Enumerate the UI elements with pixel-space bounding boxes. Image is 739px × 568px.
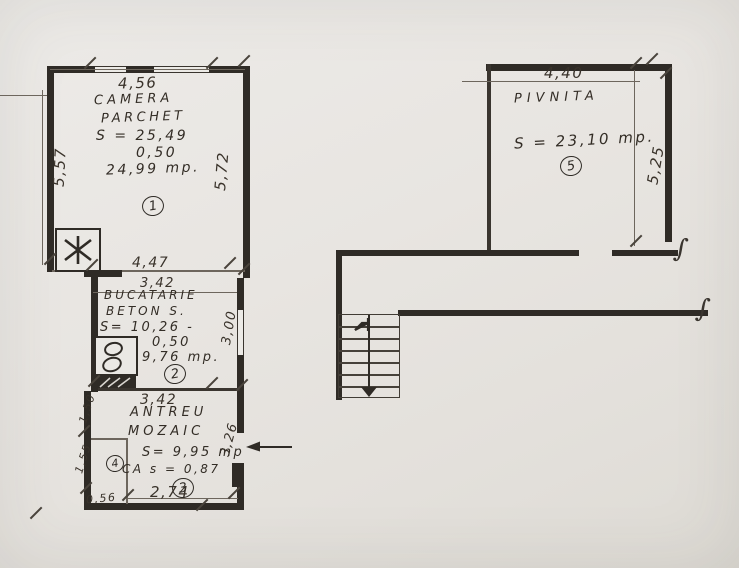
stair-start-flag-icon (349, 317, 371, 333)
staircase (338, 314, 400, 398)
dimension-tick (630, 235, 643, 248)
dim-antreu-bottom-left: 0,56 (85, 491, 117, 507)
antreu-area-line1: S= 9,95 mp (142, 445, 244, 460)
wall-break-icon: ∫ (694, 293, 712, 325)
pivnita-wall-bottom-right-segment (612, 250, 678, 256)
kitchen-wall-right-upper (237, 278, 244, 310)
pivnita-wall-left (487, 64, 491, 253)
dim-line-camera-top (50, 69, 245, 70)
dim-camera-left: 5,57 (50, 147, 70, 187)
dim-antreu-left-upper: 1,50 (76, 392, 98, 425)
bucatarie-area-line3: 9,76 mp. (142, 350, 220, 365)
extension-line-left (0, 95, 47, 96)
corridor-wall-lower (398, 310, 708, 316)
antreu-area-line2: CA s = 0,87 (122, 462, 221, 476)
camera-room-number: 1 (140, 194, 165, 218)
sink-counter-icon (94, 336, 138, 376)
floor-plan-canvas: ∫ ∫ 4,56 5,57 5,72 4,47 3,42 3,00 3,42 1… (0, 0, 739, 568)
dim-kitchen-top-outer: 4,47 (132, 255, 169, 271)
stove-icon (55, 228, 101, 272)
dimension-tick (30, 507, 43, 520)
camera-wall-right (243, 66, 250, 278)
pivnita-name: PIVNITA (514, 89, 599, 107)
dim-camera-top: 4,56 (118, 73, 158, 92)
kitchen-antreu-divider (98, 388, 240, 391)
dim-camera-right: 5,72 (211, 151, 232, 192)
pivnita-room-number: 5 (558, 154, 583, 178)
bucatarie-name-line1: BUCATARIE (104, 288, 198, 302)
stair-down-arrow-icon (361, 387, 377, 397)
dim-line-pivnita-right (634, 70, 635, 246)
camera-area-line2: 0,50 (136, 145, 177, 161)
entrance-arrow-icon (246, 440, 294, 454)
bucatarie-area-line1: S= 10,26 - (100, 320, 194, 335)
camera-name-line1: CAMERA (94, 91, 174, 109)
bucatarie-room-number: 2 (162, 362, 187, 386)
dim-pivnita-top: 4,40 (544, 64, 583, 82)
camera-area-line1: S = 25,49 (96, 128, 188, 144)
corridor-wall-top (336, 250, 579, 256)
dim-line-camera-left (42, 90, 43, 265)
camera-area-line3: 24,99 mp. (106, 159, 201, 178)
dimension-tick (224, 257, 237, 270)
bucatarie-area-line2: 0,50 (152, 335, 191, 350)
camera-name-line2: PARCHET (101, 109, 186, 127)
antreu-name-line2: MOZAIC (128, 424, 204, 439)
antreu-name-line1: ANTREU (130, 405, 207, 420)
wall-break-icon: ∫ (672, 233, 690, 265)
bucatarie-name-line2: BETON S. (106, 304, 187, 318)
closet-divider-horizontal (91, 438, 127, 440)
